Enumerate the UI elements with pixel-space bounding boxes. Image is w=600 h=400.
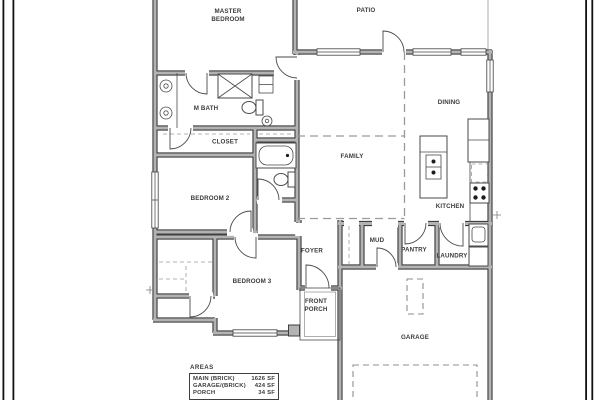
areas-row-label: MAIN (BRICK) <box>193 376 235 383</box>
porch-column <box>289 325 300 336</box>
laundry-fixtures <box>469 224 488 266</box>
dashed-room-boundaries <box>297 52 405 219</box>
utility-sink <box>469 224 488 246</box>
hall-bath-fixtures <box>256 143 296 187</box>
areas-row-value: 34 SF <box>258 390 275 397</box>
label-front-porch: PORCH <box>304 306 327 313</box>
areas-row-value: 424 SF <box>255 383 275 390</box>
label-front-porch: FRONT <box>305 298 327 305</box>
linen-shelves <box>259 76 273 93</box>
label-closet: CLOSET <box>212 139 238 146</box>
toilet <box>274 172 295 187</box>
label-family: FAMILY <box>340 153 364 160</box>
areas-row-garage: GARAGE/(BRICK) 424 SF <box>193 383 275 390</box>
refrigerator <box>468 119 489 162</box>
label-mud: MUD <box>370 237 385 244</box>
washer <box>469 247 488 266</box>
floor-plan-sheet: MASTER BEDROOM PATIO DINING FAMILY KITCH… <box>0 0 600 400</box>
areas-row-label: PORCH <box>193 390 215 397</box>
label-bedroom-3: BEDROOM 3 <box>233 278 272 285</box>
vanity-sink <box>160 107 172 119</box>
areas-table-title: AREAS <box>190 364 279 371</box>
areas-row-main: MAIN (BRICK) 1626 SF <box>193 376 275 383</box>
kitchen-island <box>420 136 447 198</box>
label-laundry: LAUNDRY <box>436 253 468 260</box>
label-foyer: FOYER <box>301 248 323 255</box>
areas-row-value: 1626 SF <box>251 376 275 383</box>
label-kitchen: KITCHEN <box>436 203 465 210</box>
dishwasher <box>472 164 488 182</box>
label-garage: GARAGE <box>401 334 429 341</box>
pedestal-sink <box>262 116 272 126</box>
label-bedroom-2: BEDROOM 2 <box>191 195 230 202</box>
range-burners <box>470 183 489 203</box>
areas-table-box: MAIN (BRICK) 1626 SF GARAGE/(BRICK) 424 … <box>189 373 279 400</box>
front-porch-outline <box>289 288 341 340</box>
label-m-bath: M BATH <box>194 105 219 112</box>
label-master-bedroom: MASTER <box>214 8 241 15</box>
vanity-sink <box>160 80 172 92</box>
label-pantry: PANTRY <box>401 247 427 254</box>
label-dining: DINING <box>438 99 461 106</box>
label-master-bedroom: BEDROOM <box>211 16 244 23</box>
toilet <box>242 100 263 115</box>
attic-access-dashed <box>407 279 423 314</box>
floor-plan-drawing: MASTER BEDROOM PATIO DINING FAMILY KITCH… <box>0 0 600 400</box>
label-patio: PATIO <box>357 7 376 14</box>
bathtub <box>256 143 296 168</box>
garage-door-clearance-dashed <box>353 365 477 400</box>
master-bath-fixtures <box>160 73 273 128</box>
shower <box>218 74 252 98</box>
areas-row-label: GARAGE/(BRICK) <box>193 383 246 390</box>
areas-row-porch: PORCH 34 SF <box>193 390 275 397</box>
areas-table: AREAS MAIN (BRICK) 1626 SF GARAGE/(BRICK… <box>189 364 279 400</box>
